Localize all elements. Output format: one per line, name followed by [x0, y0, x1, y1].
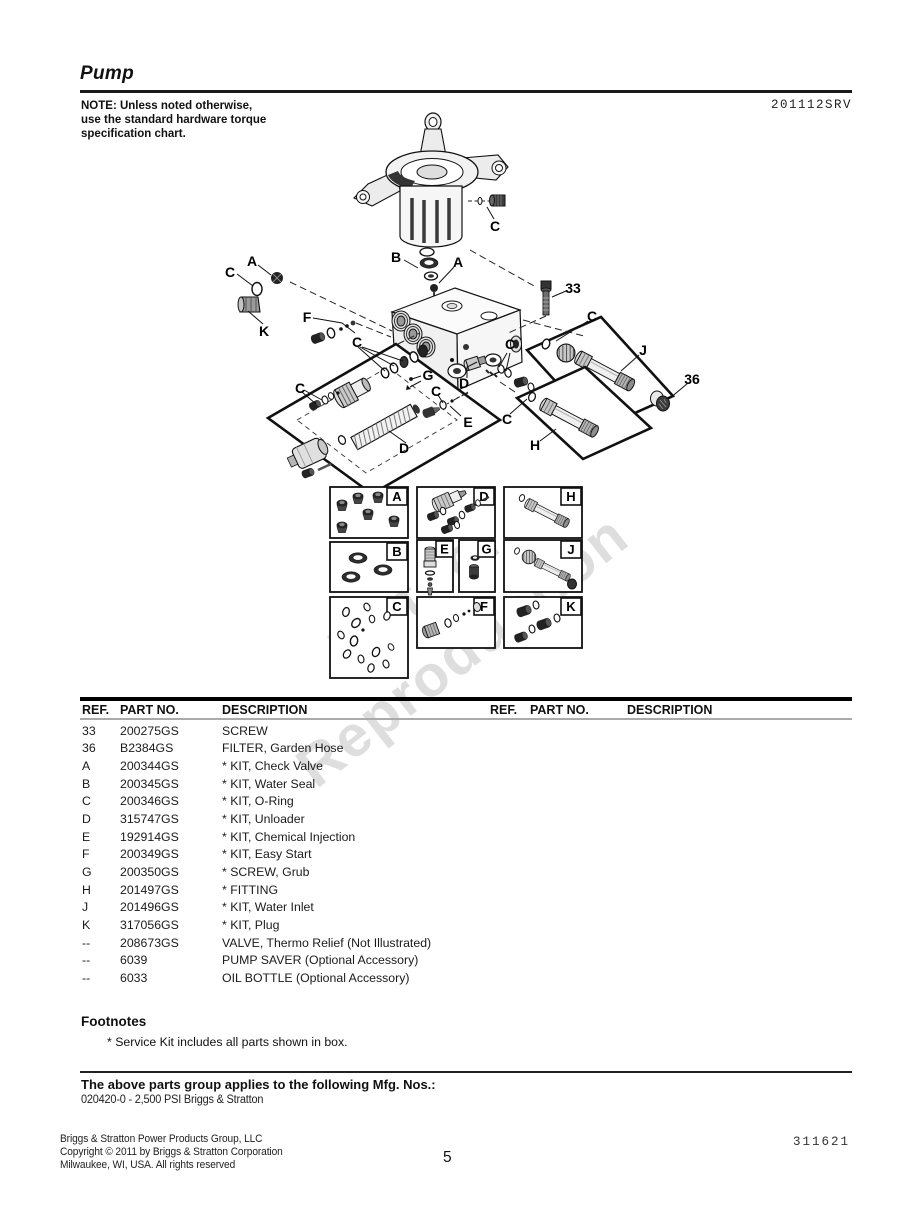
- footer-company-line3: Milwaukee, WI, USA. All rights reserved: [60, 1159, 283, 1172]
- table-header-ref: REF.: [82, 703, 109, 717]
- inlet-plug-group: [238, 272, 283, 312]
- diagram-label: C: [587, 308, 597, 324]
- kit-box-label: K: [566, 599, 576, 614]
- kit-box-label: B: [392, 544, 401, 559]
- mfg-value: 020420-0 - 2,500 PSI Briggs & Stratton: [81, 1094, 263, 1106]
- diagram-label: C: [490, 218, 500, 234]
- page-number: 5: [443, 1149, 452, 1167]
- diagram-label: C: [502, 411, 512, 427]
- seal-stack: [420, 248, 438, 300]
- table-row: 33200275GSSCREW: [80, 723, 852, 741]
- table-row: G200350GS* SCREW, Grub: [80, 864, 852, 882]
- footer-company-line1: Briggs & Stratton Power Products Group, …: [60, 1133, 283, 1146]
- diagram-label: C: [505, 336, 515, 352]
- diagram-label: D: [399, 440, 409, 456]
- table-header-desc: DESCRIPTION: [222, 703, 307, 717]
- diagram-label: D: [459, 375, 469, 391]
- diagram-label: J: [639, 342, 647, 358]
- table-row: E192914GS* KIT, Chemical Injection: [80, 829, 852, 847]
- title-rule: [80, 90, 852, 93]
- table-header-desc-2: DESCRIPTION: [627, 703, 712, 717]
- diagram-label: K: [259, 323, 269, 339]
- page-title: Pump: [80, 63, 134, 85]
- table-row: B200345GS* KIT, Water Seal: [80, 776, 852, 794]
- kit-box-label: D: [479, 489, 488, 504]
- diagram-label: B: [391, 249, 401, 265]
- easy-start-group: [310, 321, 356, 345]
- table-header-part: PART NO.: [120, 703, 179, 717]
- footer-doc-code: 311621: [793, 1135, 850, 1149]
- table-row: --6033OIL BOTTLE (Optional Accessory): [80, 970, 852, 988]
- kit-box-label: A: [392, 489, 402, 504]
- diagram-label: 33: [565, 280, 581, 296]
- table-header-part-2: PART NO.: [530, 703, 589, 717]
- kit-box-label: J: [567, 542, 574, 557]
- table-row: --6039PUMP SAVER (Optional Accessory): [80, 952, 852, 970]
- table-header-ref-2: REF.: [490, 703, 517, 717]
- diagram-label: G: [423, 367, 434, 383]
- mfg-rule: [80, 1071, 852, 1073]
- table-row: K317056GS* KIT, Plug: [80, 917, 852, 935]
- parts-table: REF. PART NO. DESCRIPTION REF. PART NO. …: [80, 697, 852, 988]
- pump-head: [354, 113, 508, 247]
- footer-company-line2: Copyright © 2011 by Briggs & Stratton Co…: [60, 1146, 283, 1159]
- diagram-label: C: [431, 383, 441, 399]
- kit-grid: A D: [330, 486, 582, 678]
- parts-table-rows: 33200275GSSCREW36B2384GSFILTER, Garden H…: [80, 720, 852, 988]
- diagram-label: H: [530, 437, 540, 453]
- table-row: C200346GS* KIT, O-Ring: [80, 793, 852, 811]
- footer-company-block: Briggs & Stratton Power Products Group, …: [60, 1133, 283, 1173]
- mfg-heading: The above parts group applies to the fol…: [81, 1077, 436, 1092]
- exploded-diagram: C A K C B A 33 C J 36 F C C G D C C E C …: [0, 95, 906, 695]
- kit-box-label: H: [566, 489, 575, 504]
- table-row: 36B2384GSFILTER, Garden Hose: [80, 740, 852, 758]
- kit-box-label: C: [392, 599, 402, 614]
- diagram-label: C: [295, 380, 305, 396]
- diagram-label: C: [352, 334, 362, 350]
- kit-box-label: G: [481, 542, 491, 557]
- diagram-label: C: [225, 264, 235, 280]
- diagram-label: F: [303, 309, 312, 325]
- footnotes-heading: Footnotes: [81, 1014, 146, 1029]
- diagram-label: E: [463, 414, 472, 430]
- table-row: D315747GS* KIT, Unloader: [80, 811, 852, 829]
- kit-box-label: F: [480, 599, 488, 614]
- diagram-label: A: [453, 254, 463, 270]
- table-row: F200349GS* KIT, Easy Start: [80, 846, 852, 864]
- table-header-row: REF. PART NO. DESCRIPTION REF. PART NO. …: [80, 701, 852, 718]
- manual-page: Pump NOTE: Unless noted otherwise, use t…: [0, 0, 906, 1208]
- table-row: H201497GS* FITTING: [80, 882, 852, 900]
- table-row: J201496GS* KIT, Water Inlet: [80, 899, 852, 917]
- table-row: --208673GSVALVE, Thermo Relief (Not Illu…: [80, 935, 852, 953]
- diagram-label: A: [247, 253, 257, 269]
- footnote-item: * Service Kit includes all parts shown i…: [107, 1035, 348, 1049]
- bolt-33: [541, 281, 551, 315]
- kit-box-label: E: [440, 542, 449, 557]
- table-row: A200344GS* KIT, Check Valve: [80, 758, 852, 776]
- diagram-label: 36: [684, 371, 700, 387]
